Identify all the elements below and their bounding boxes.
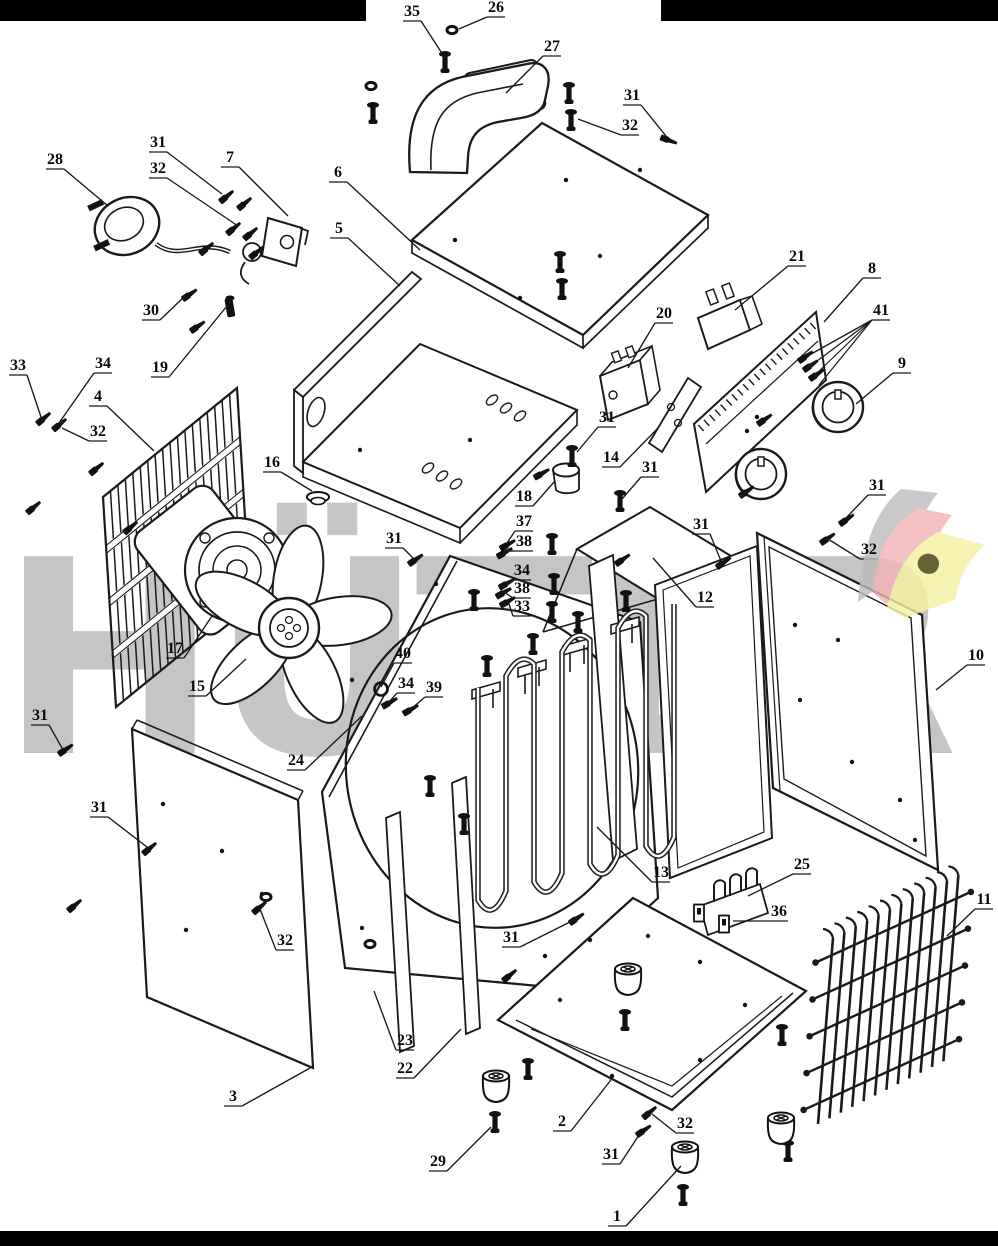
diagram-page: HÜTER bbox=[0, 0, 998, 1246]
part-7-cord-anchor bbox=[241, 218, 308, 284]
part-11-front-grill bbox=[801, 866, 974, 1124]
part-28-power-plug bbox=[85, 187, 230, 266]
part-25-bracket bbox=[700, 868, 768, 935]
exploded-view-drawing: HÜTER bbox=[0, 0, 998, 1246]
part-20-thermostat bbox=[600, 346, 660, 420]
part-18-capacitor bbox=[553, 464, 579, 494]
part-21-switch-bracket bbox=[698, 283, 762, 349]
